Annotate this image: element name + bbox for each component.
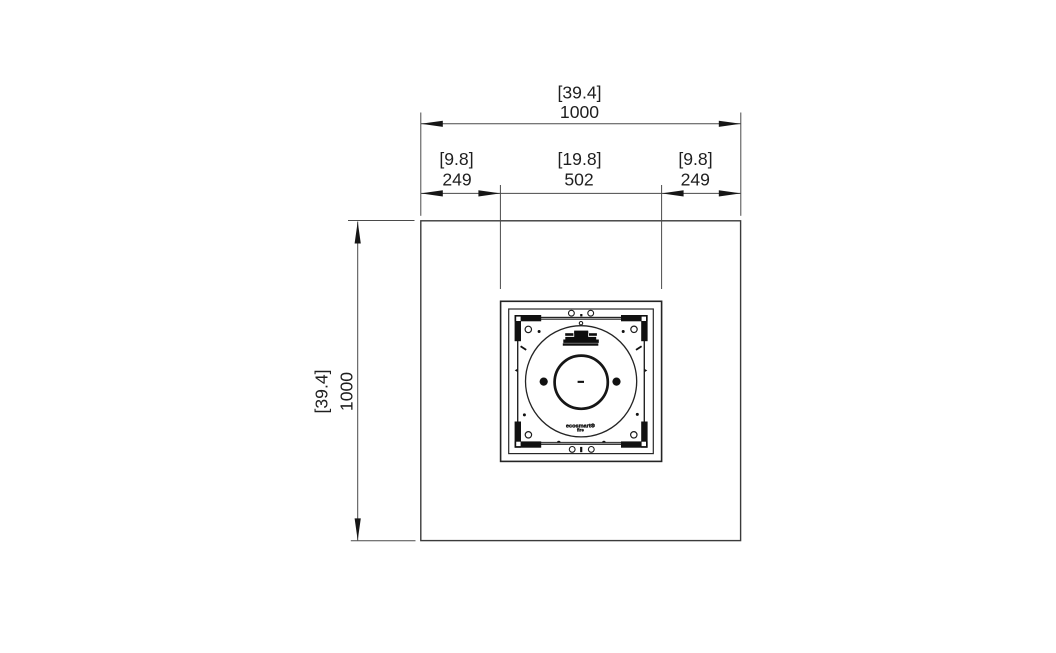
svg-text:[39.4]: [39.4] (557, 82, 601, 102)
svg-text:1000: 1000 (336, 372, 356, 411)
svg-text:[19.8]: [19.8] (557, 149, 601, 169)
svg-text:[9.8]: [9.8] (678, 149, 712, 169)
svg-text:fire: fire (577, 428, 584, 433)
svg-text:502: 502 (564, 169, 593, 189)
svg-text:249: 249 (681, 169, 710, 189)
svg-text:[9.8]: [9.8] (439, 149, 473, 169)
svg-text:1000: 1000 (560, 102, 599, 122)
svg-text:[39.4]: [39.4] (312, 369, 332, 413)
svg-text:249: 249 (442, 169, 471, 189)
